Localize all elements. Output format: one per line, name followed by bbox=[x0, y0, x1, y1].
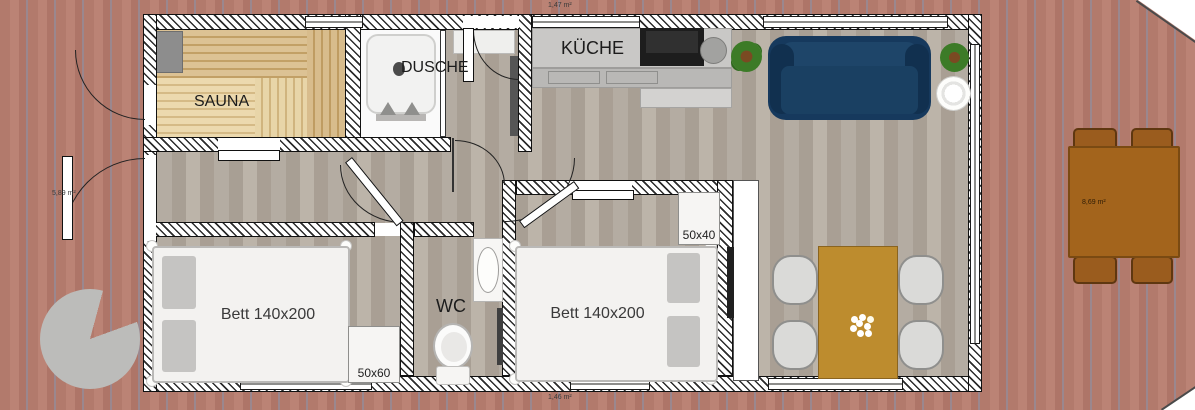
kitchen-island bbox=[640, 88, 732, 108]
bed-middle-label: Bett 140x200 bbox=[550, 305, 644, 323]
wall-shower-right bbox=[440, 30, 446, 137]
door-leaf bbox=[572, 190, 634, 200]
door-opening bbox=[144, 155, 156, 241]
dining-table bbox=[818, 246, 898, 379]
cabinet-50x60-label: 50x60 bbox=[349, 366, 399, 380]
side-table bbox=[937, 77, 970, 110]
cabinet-50x40: 50x40 bbox=[678, 192, 720, 245]
door-opening bbox=[144, 85, 156, 125]
kitchen-drawer bbox=[606, 71, 658, 84]
sauna-label: SAUNA bbox=[194, 93, 249, 111]
sliding-panel bbox=[733, 180, 759, 381]
bed-left-label: Bett 140x200 bbox=[221, 306, 315, 324]
area-label-left: 5,89 m² bbox=[52, 190, 76, 197]
flower-centerpiece bbox=[856, 320, 863, 327]
window bbox=[532, 16, 640, 28]
door-opening bbox=[463, 16, 519, 28]
dining-chair bbox=[898, 255, 944, 305]
shower-label: DUSCHE bbox=[401, 59, 469, 77]
window bbox=[768, 378, 903, 390]
wall-shading-strip bbox=[497, 308, 503, 365]
kitchen-drawer bbox=[548, 71, 600, 84]
dining-chair bbox=[772, 255, 818, 305]
plant-icon bbox=[731, 41, 762, 72]
wall-wc-top bbox=[414, 222, 474, 237]
window bbox=[763, 16, 948, 28]
plant-icon bbox=[940, 43, 969, 72]
pillow bbox=[667, 253, 700, 303]
sauna-bench bbox=[307, 30, 345, 137]
outdoor-chair bbox=[1073, 256, 1117, 284]
wall-shading-strip bbox=[727, 247, 734, 318]
wall-hall-top bbox=[143, 137, 451, 152]
shower-fixture bbox=[376, 114, 426, 121]
door-leaf bbox=[62, 156, 73, 240]
door-frame-line bbox=[452, 138, 454, 192]
stone-circle bbox=[40, 289, 140, 389]
cabinet-50x60: 50x60 bbox=[348, 326, 400, 383]
dining-chair bbox=[898, 320, 944, 370]
pillow bbox=[162, 320, 196, 372]
wall-wc-left bbox=[400, 222, 414, 376]
wc-sink-basin bbox=[477, 247, 499, 293]
floor-plan-canvas: 8,69 m² bbox=[0, 0, 1195, 410]
wc-label: WC bbox=[436, 296, 466, 317]
sofa-seat bbox=[781, 66, 918, 114]
outdoor-table: 8,69 m² bbox=[1068, 146, 1180, 258]
dining-chair bbox=[772, 320, 818, 370]
toilet-bowl-inner bbox=[441, 332, 467, 362]
area-label-terrace-table: 8,69 m² bbox=[1082, 199, 1106, 206]
window bbox=[305, 16, 363, 28]
sofa-back bbox=[780, 42, 919, 66]
wall-kitchen-left bbox=[518, 14, 532, 152]
kitchen-sink bbox=[700, 37, 727, 64]
stove-top bbox=[646, 31, 698, 53]
wall-bedroom1-top bbox=[143, 222, 375, 237]
kitchen-label: KÜCHE bbox=[561, 38, 624, 59]
wall-sauna-right bbox=[345, 14, 361, 152]
sauna-bench bbox=[255, 78, 307, 137]
area-label-bottom: 1,46 m² bbox=[548, 394, 572, 401]
toilet-tank bbox=[436, 366, 470, 385]
area-label-top: 1,47 m² bbox=[548, 2, 572, 9]
pillow bbox=[667, 316, 700, 367]
outdoor-chair bbox=[1131, 256, 1173, 284]
pillow bbox=[162, 256, 196, 309]
window bbox=[970, 44, 980, 344]
cabinet-50x40-label: 50x40 bbox=[679, 228, 719, 242]
door-leaf bbox=[218, 150, 280, 161]
